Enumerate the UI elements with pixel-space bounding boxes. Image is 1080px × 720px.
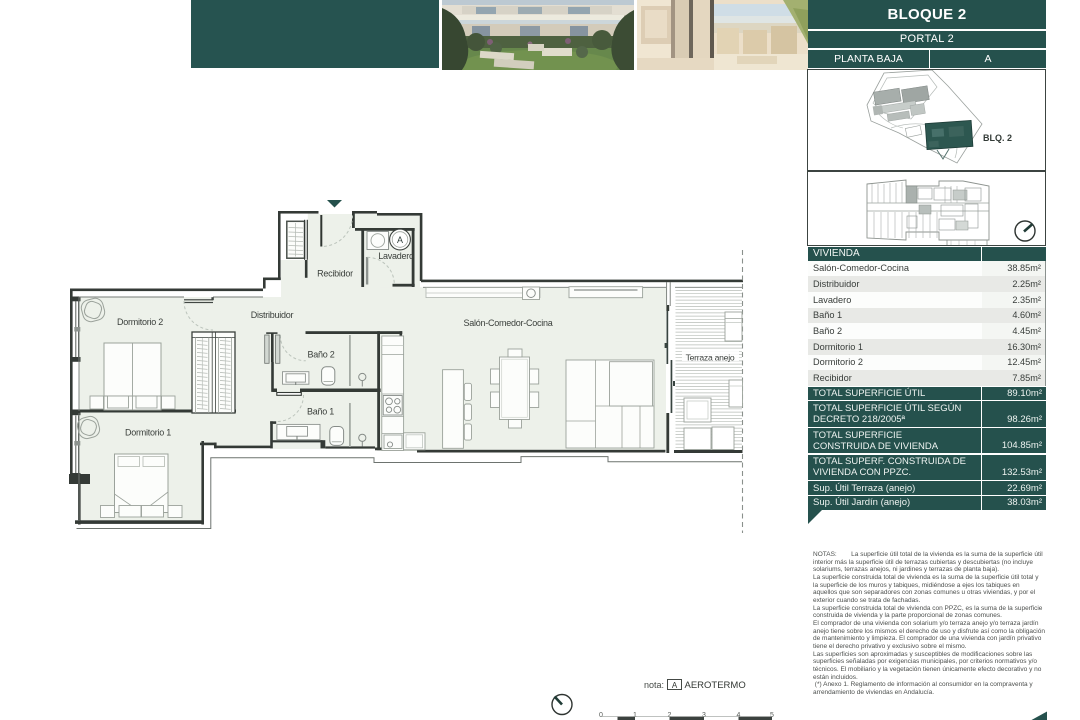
svg-text:Salón-Comedor-Cocina: Salón-Comedor-Cocina (463, 318, 552, 328)
svg-text:Dormitorio 1: Dormitorio 1 (125, 428, 171, 438)
svg-text:Baño 1: Baño 1 (307, 407, 334, 417)
svg-text:Distribuidor: Distribuidor (251, 310, 294, 320)
svg-text:Lavadero: Lavadero (378, 251, 414, 261)
svg-text:Terraza anejo: Terraza anejo (686, 353, 735, 363)
svg-text:Recibidor: Recibidor (317, 269, 353, 279)
svg-text:Baño 2: Baño 2 (307, 350, 334, 360)
svg-text:A: A (397, 235, 403, 245)
svg-text:Dormitorio 2: Dormitorio 2 (117, 317, 163, 327)
svg-text:nota:: nota: (644, 680, 664, 690)
svg-text:A: A (672, 681, 678, 690)
svg-text:AEROTERMO: AEROTERMO (685, 680, 746, 691)
svg-text:0: 0 (599, 712, 603, 719)
